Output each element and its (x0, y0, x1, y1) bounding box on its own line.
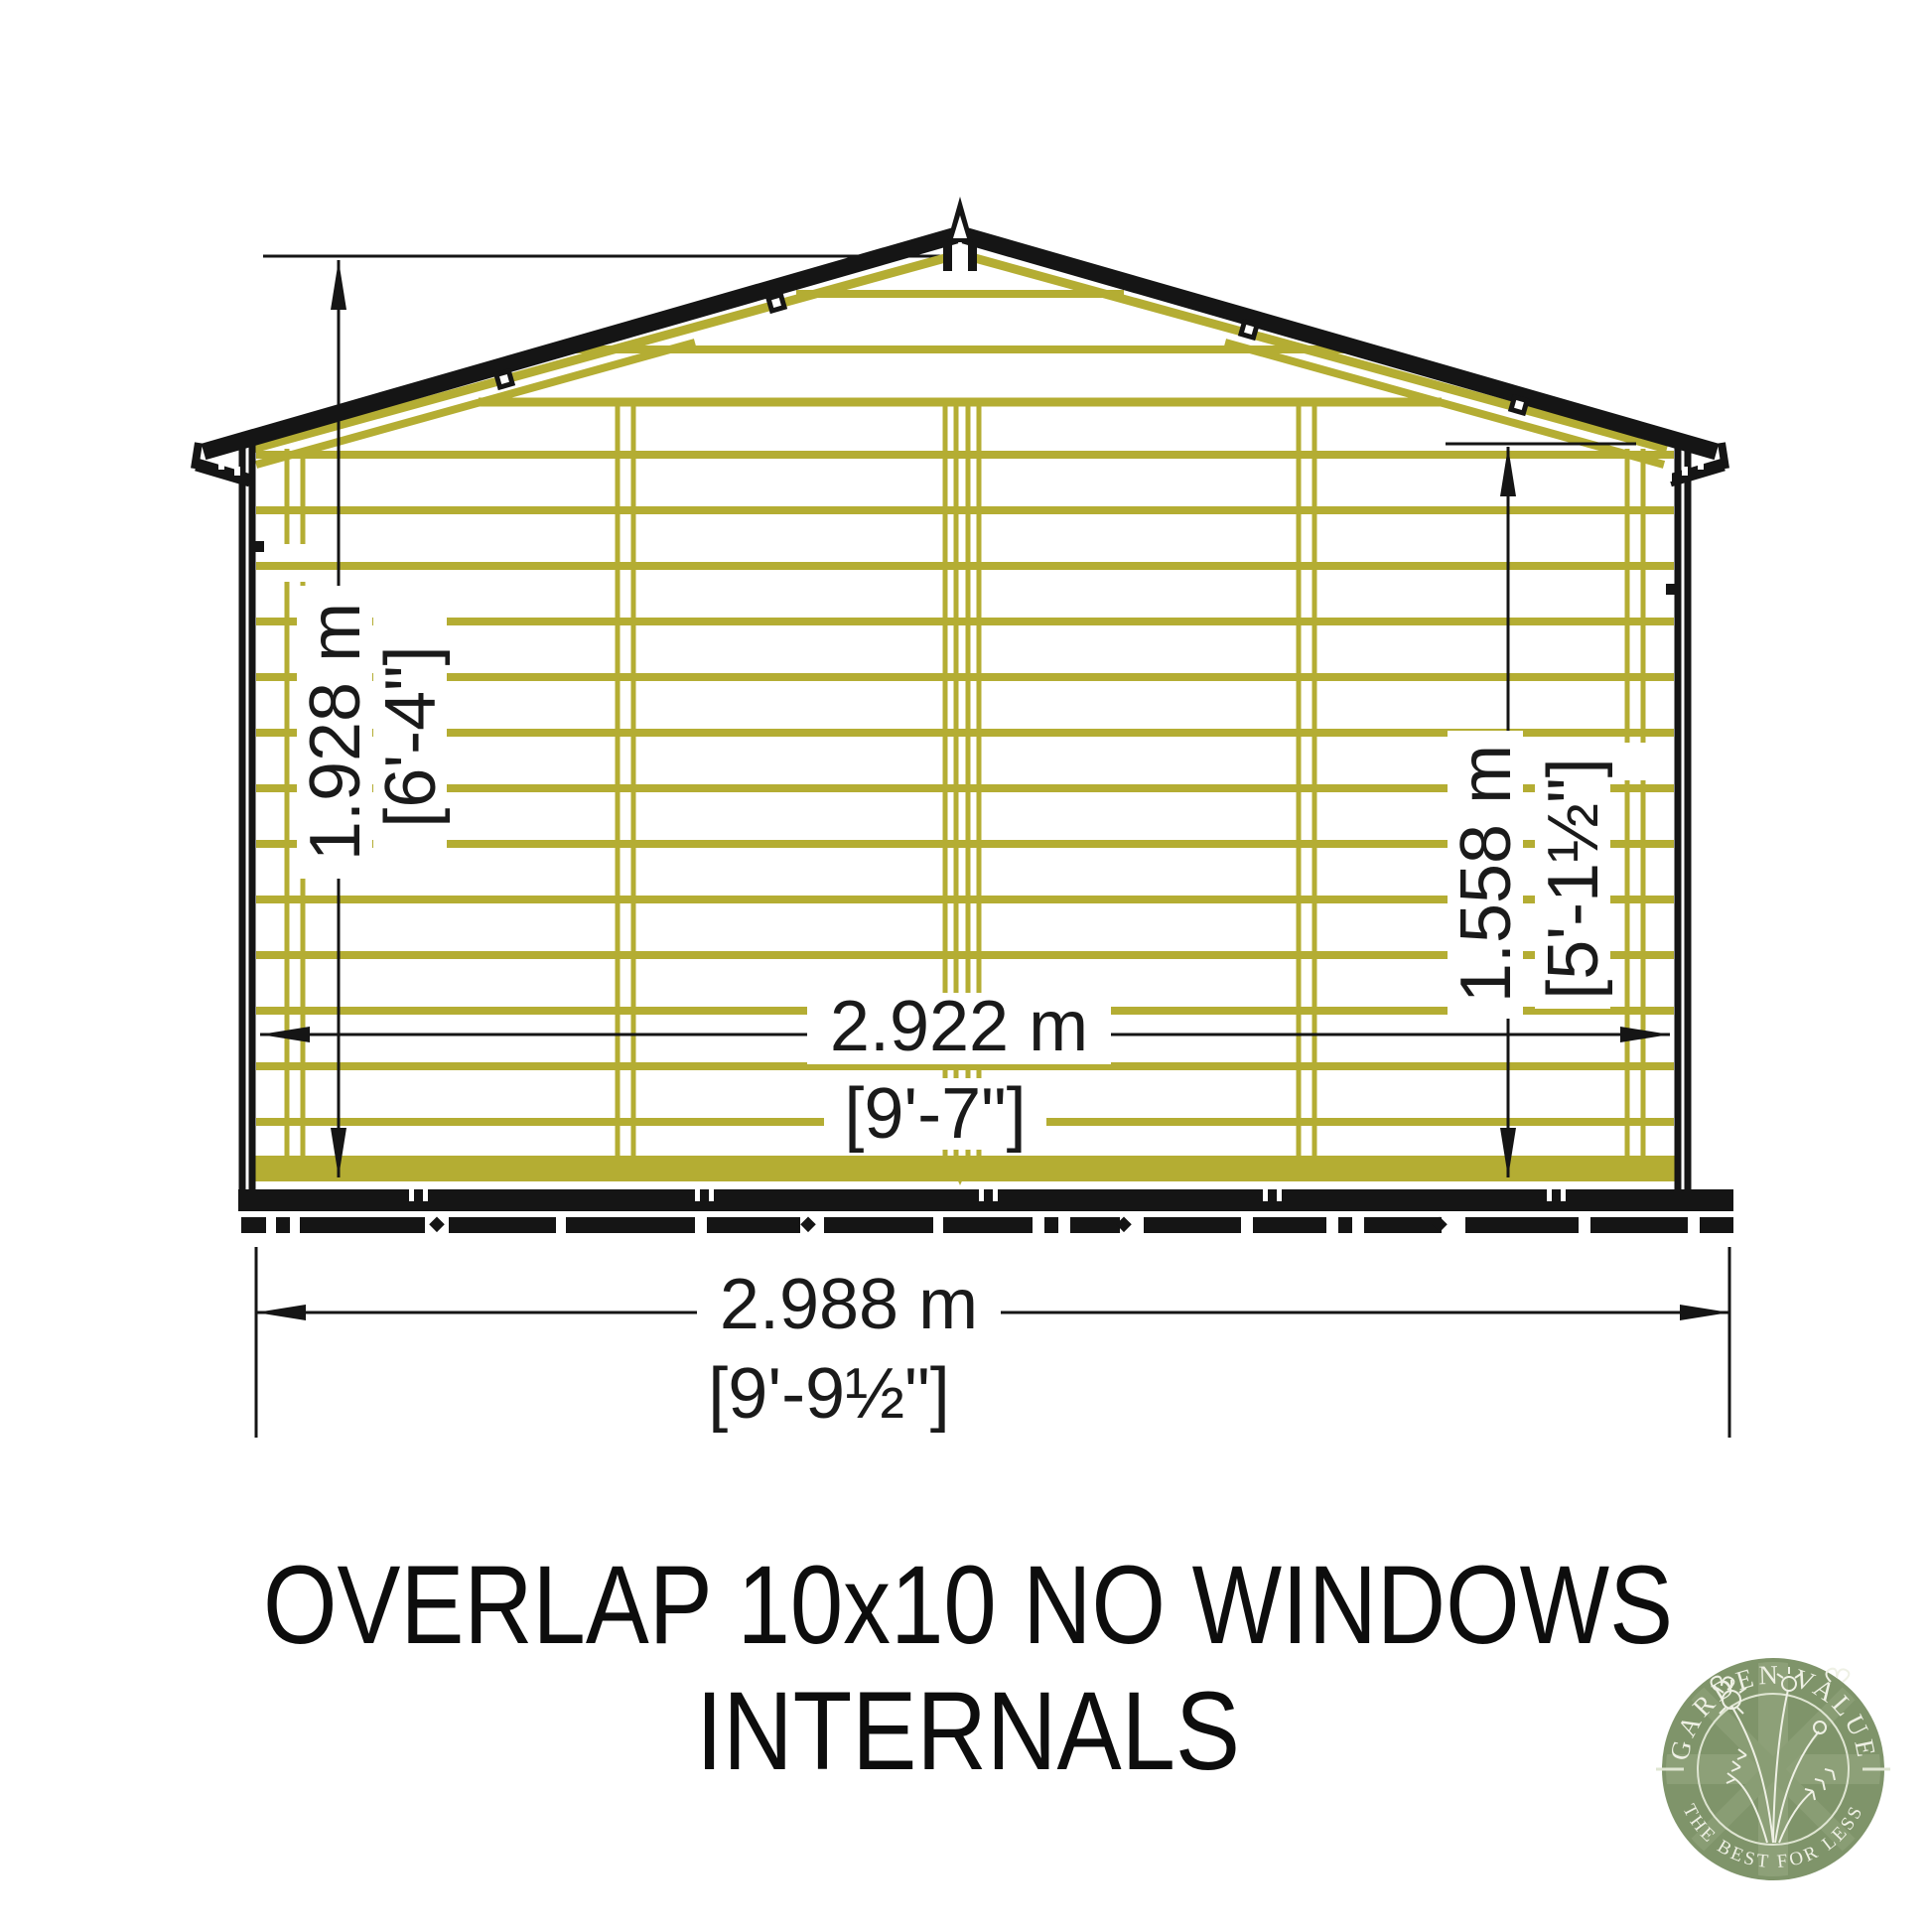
arrow-up-icon (331, 260, 346, 310)
right-roof-slope (964, 235, 1717, 452)
title-line-2: INTERNALS (696, 1669, 1240, 1793)
floor (238, 1189, 1733, 1233)
ridge-height-imperial: [6'-4"] (371, 645, 451, 827)
title-line-1: OVERLAP 10x10 NO WINDOWS (263, 1543, 1673, 1667)
garden-value-logo: GARDEN VALUE THE BEST FOR LESS (1656, 1658, 1890, 1880)
floor-bearers (241, 1217, 1733, 1233)
internal-width-metric: 2.922 m (830, 987, 1088, 1066)
internal-width-imperial: [9'-7"] (844, 1074, 1026, 1154)
roof (195, 197, 1725, 482)
arrow-right-icon (1680, 1305, 1729, 1320)
fascia-ticks (218, 461, 1704, 482)
arrow-left-icon (256, 1305, 306, 1320)
left-wall-step (252, 541, 264, 552)
eaves-height-imperial: [5'-1½"] (1534, 758, 1613, 999)
left-roof-slope (204, 235, 956, 452)
right-stud-notch (1624, 743, 1650, 780)
shed-technical-drawing: 1.928 m [6'-4"] 1.558 m [5'-1½"] 2.922 m… (0, 0, 1932, 1932)
ridge-height-metric: 1.928 m (296, 603, 375, 861)
external-width-imperial: [9'-9½"] (708, 1354, 949, 1434)
dimension-external-width: 2.988 m [9'-9½"] (256, 1247, 1729, 1440)
eaves-height-metric: 1.558 m (1447, 745, 1526, 1003)
external-width-metric: 2.988 m (720, 1265, 978, 1344)
right-wall-step (1666, 584, 1678, 595)
floor-band (238, 1189, 1733, 1211)
gable-framing (253, 258, 1667, 465)
drawing-title: OVERLAP 10x10 NO WINDOWS INTERNALS (263, 1543, 1673, 1793)
